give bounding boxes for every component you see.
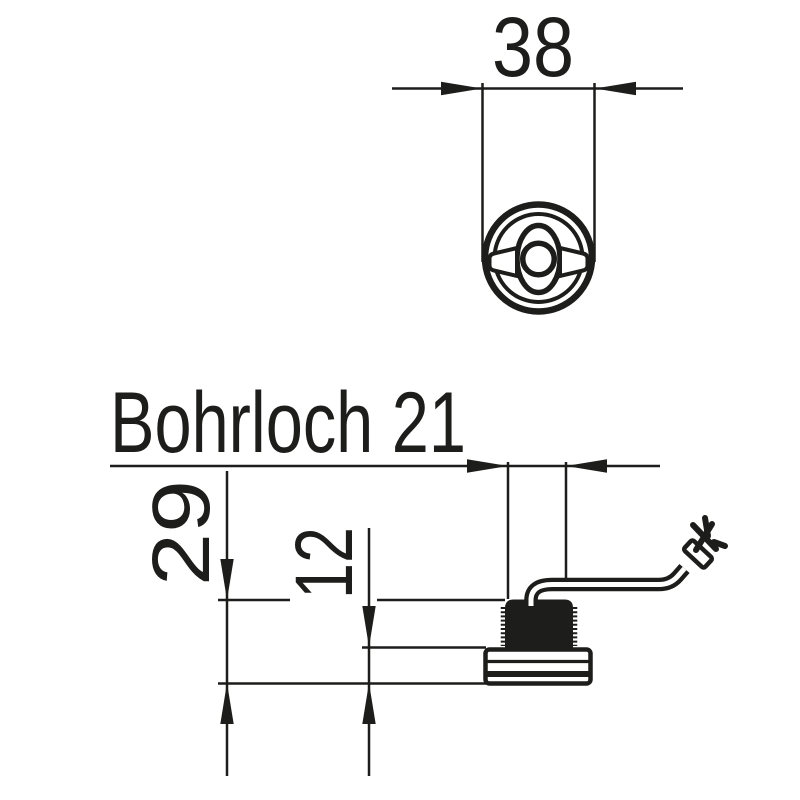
arrowhead-left-icon [566,459,607,472]
dimension-value-29: 29 [136,480,227,586]
grommet-top-view [485,205,592,312]
dimension-29: 29 [136,471,234,776]
threaded-body [505,600,573,650]
arrowhead-right-icon [441,82,482,95]
hole-label: Bohrloch 21 [110,375,466,471]
technical-drawing-canvas: 38 Bohrloch 21 29 [0,0,800,800]
right-wing [560,248,588,276]
center-hole-circle [523,243,555,275]
side-view: Bohrloch 21 29 12 [110,375,725,776]
dimension-38: 38 [392,0,683,262]
dimension-12: 12 [279,527,376,776]
left-wing [490,248,518,276]
arrowhead-down-icon [362,606,375,647]
flange-base [486,650,591,684]
arrowhead-up-icon [362,683,375,724]
arrowhead-up-icon [220,683,233,724]
dimension-drawing: 38 Bohrloch 21 29 [0,0,800,800]
arrowhead-left-icon [595,82,636,95]
dimension-value-12: 12 [279,527,370,599]
grommet-side-view [484,518,726,684]
top-view: 38 [392,0,683,312]
arrowhead-right-icon [467,459,508,472]
wire-end-x-icon [693,518,725,550]
dimension-value-38: 38 [492,0,574,94]
